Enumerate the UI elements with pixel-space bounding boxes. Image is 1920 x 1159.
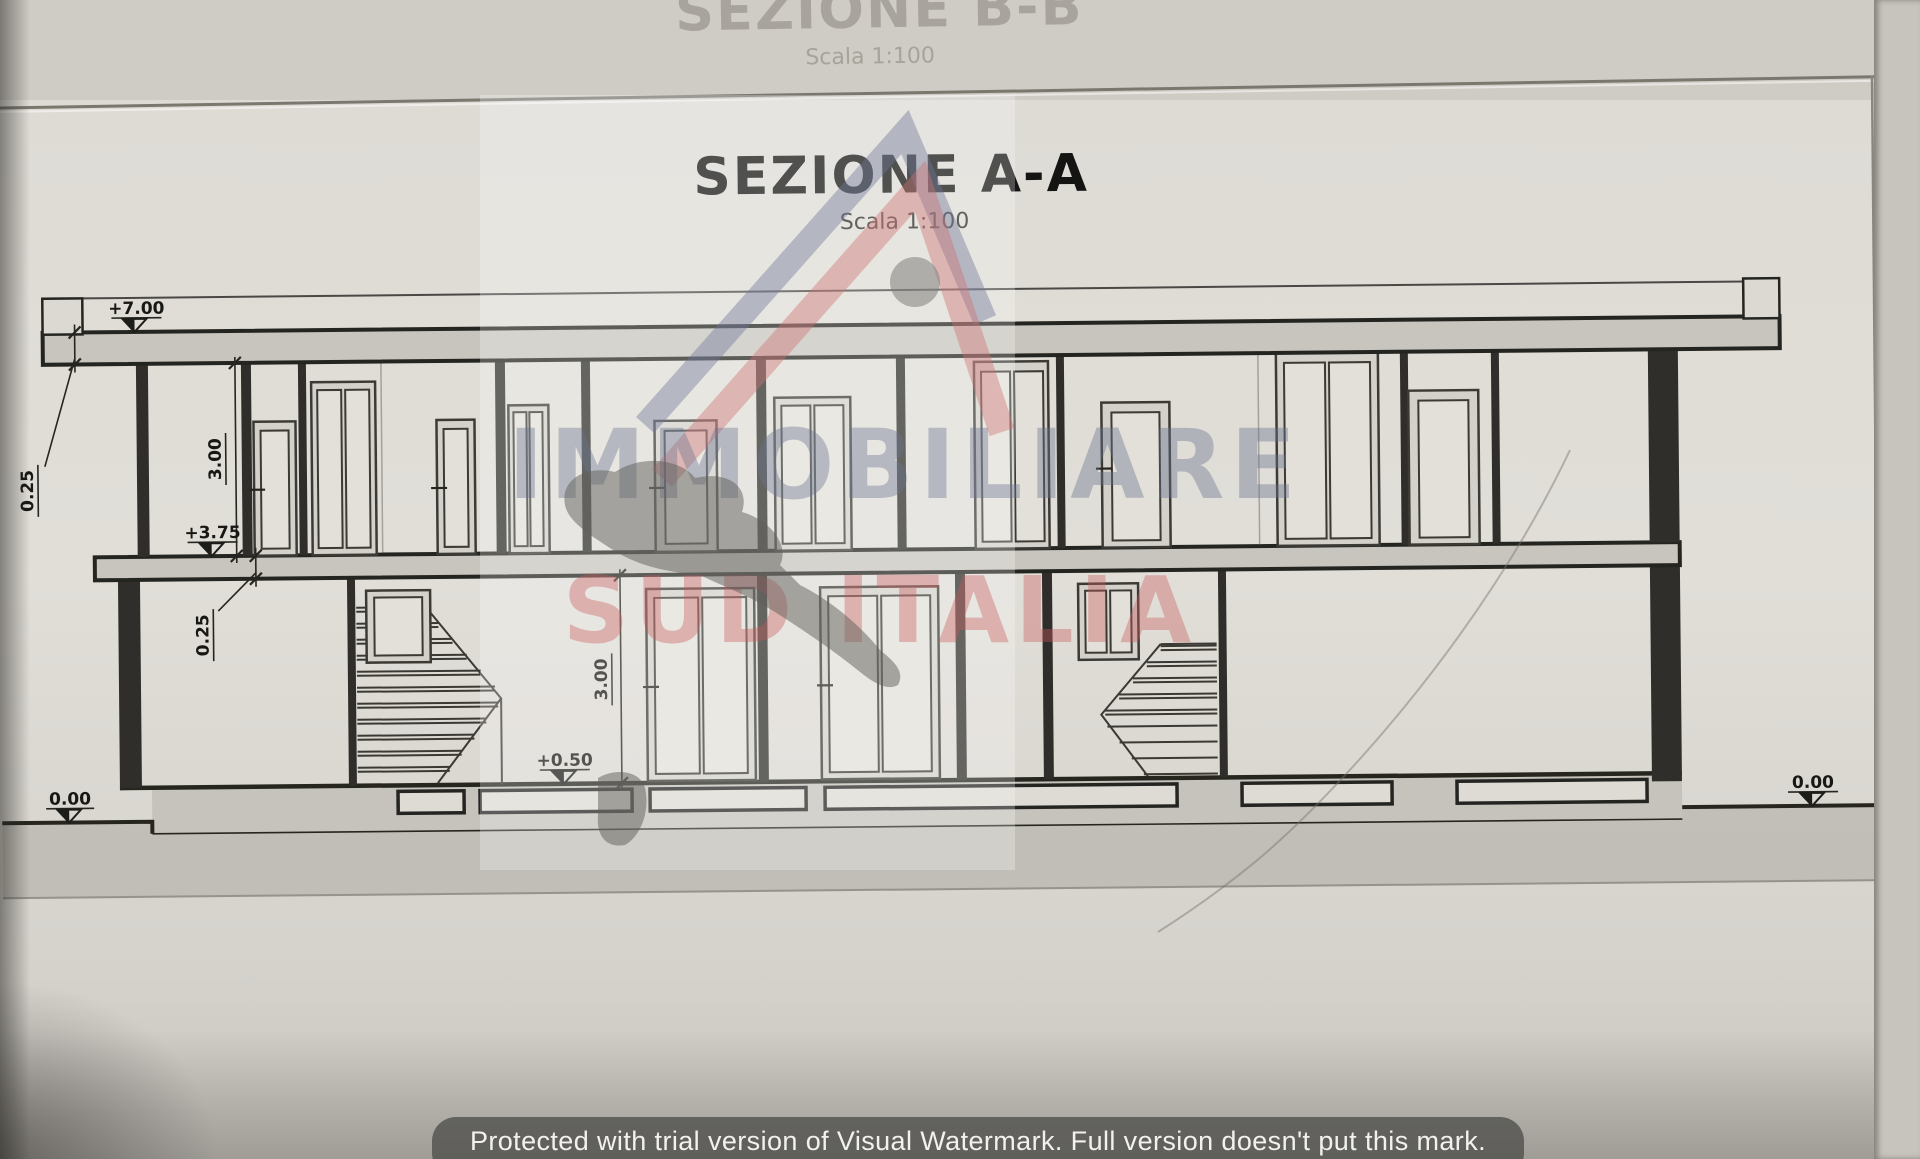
photo-left-shadow <box>0 0 30 1159</box>
photo-right-edge <box>1874 0 1920 1159</box>
logo-person-head-icon <box>890 257 940 307</box>
watermark-overlay: IMMOBILIARE SUD ITALIA <box>0 0 1920 1159</box>
photo-of-architectural-drawing: SEZIONE B-B Scala 1:100 SEZIONE A-A Scal… <box>0 0 1920 1159</box>
photo-corner-shadow <box>0 980 220 1159</box>
visual-watermark-trial-banner: Protected with trial version of Visual W… <box>432 1117 1524 1159</box>
watermark-brand-line2: SUD ITALIA <box>563 557 1197 664</box>
